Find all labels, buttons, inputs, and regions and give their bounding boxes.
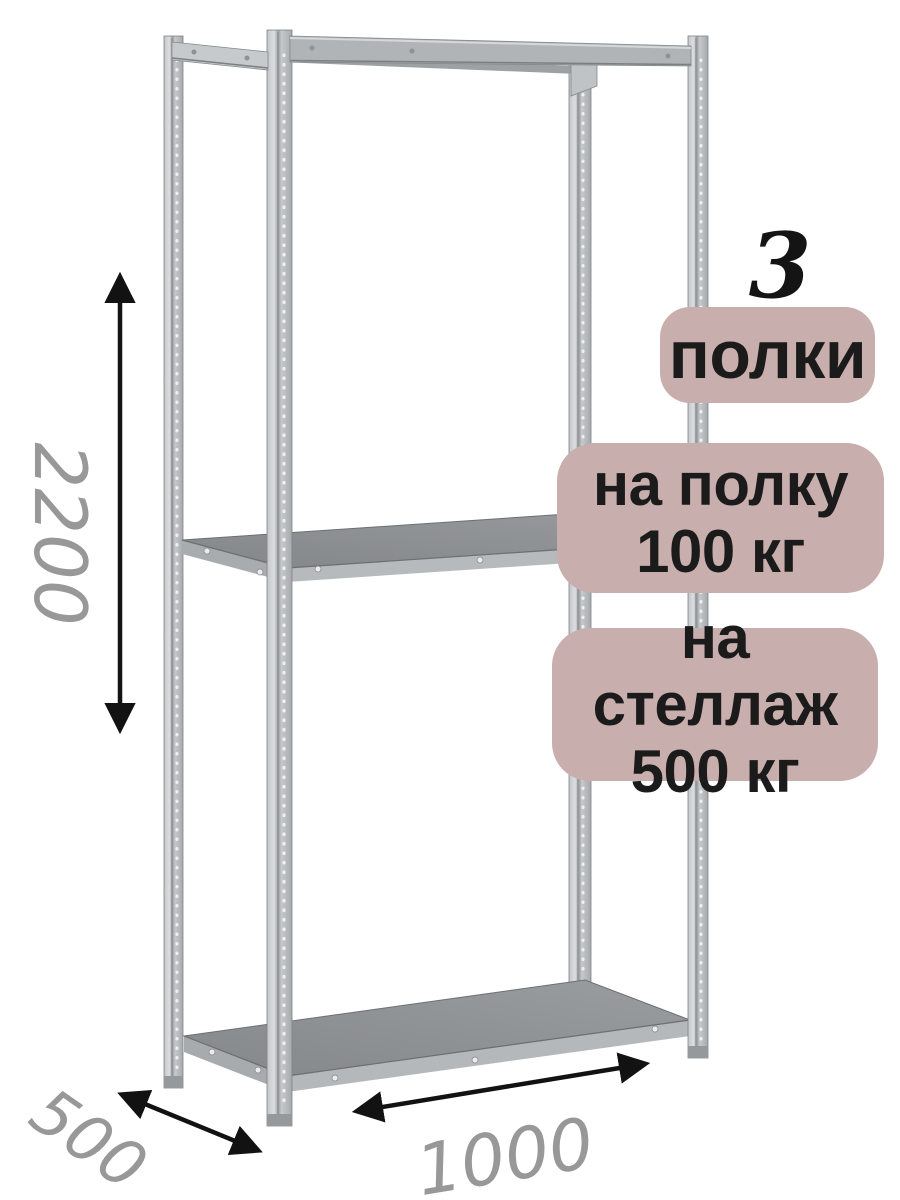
per-rack-load-badge: на стеллаж 500 кг: [552, 628, 878, 781]
top-beam-front: [290, 36, 691, 66]
shelf-count-badge: полки: [660, 307, 875, 403]
top-beam-left: [172, 42, 268, 70]
shelf-count-label: полки: [669, 316, 866, 394]
shelf-count-number: 3: [734, 218, 826, 314]
per-shelf-load-line2: 100 кг: [636, 518, 805, 585]
per-rack-load-line1: на стеллаж: [552, 604, 878, 738]
dimension-label-width: 1000: [410, 1102, 599, 1200]
per-shelf-load-badge: на полку 100 кг: [557, 443, 884, 593]
dimension-label-height: 2200: [18, 442, 102, 625]
shelf-bottom: [184, 980, 690, 1092]
per-shelf-load-line1: на полку: [593, 451, 848, 518]
post-back-left: [164, 36, 183, 1088]
per-rack-load-line2: 500 кг: [631, 738, 800, 805]
product-image: 2200 500 1000 3 полки на полку 100 кг на…: [0, 0, 900, 1200]
dimension-label-depth: 500: [17, 1075, 160, 1200]
shelving-rack-illustration: 2200 500 1000: [0, 0, 900, 1200]
post-front-left: [267, 30, 292, 1126]
